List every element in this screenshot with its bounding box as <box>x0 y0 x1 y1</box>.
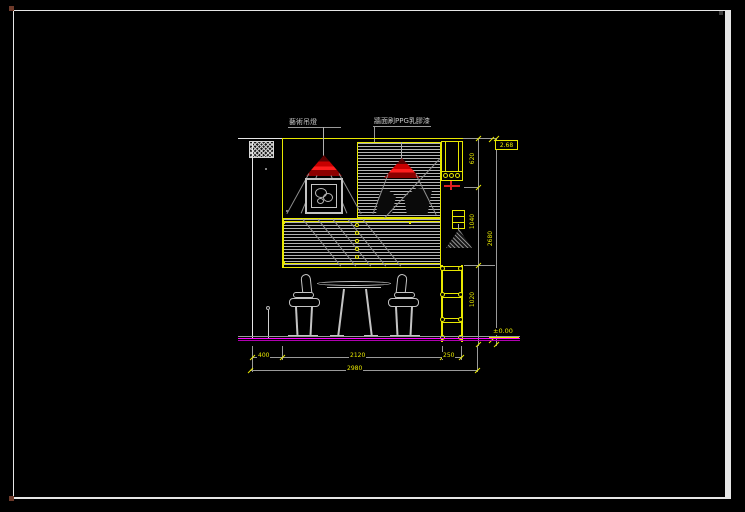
frame-art-flower <box>317 198 324 204</box>
label-pendant: 藝術吊燈 <box>289 118 317 126</box>
red-center-marker <box>450 181 452 190</box>
cabinet-stile <box>445 142 446 172</box>
floor-line-magenta <box>238 338 520 339</box>
ladder-joint <box>440 317 445 322</box>
hinge-circle <box>355 247 359 251</box>
ladder-joint <box>458 266 463 271</box>
chair-leg <box>310 307 313 335</box>
dim-text: 400 <box>257 352 270 359</box>
sheet-border-right <box>725 10 731 499</box>
cabinet-knob <box>449 173 454 178</box>
dim-text-overall: 2680 <box>487 230 494 247</box>
ref-dot <box>265 168 267 170</box>
sheet-corner-mark <box>9 496 14 501</box>
ladder-joint <box>458 292 463 297</box>
lamp-shade <box>306 155 342 176</box>
cad-drawing-canvas[interactable]: 藝術吊燈 牆面刷PPG乳膠漆 <box>0 0 745 512</box>
table-top <box>317 281 391 286</box>
dim-text: 250 <box>442 352 455 359</box>
cabinet-knob <box>443 173 448 178</box>
dim-text: 1040 <box>469 213 476 230</box>
table-leg <box>337 289 345 336</box>
cabinet-knob <box>455 173 460 178</box>
dim-text: 620 <box>469 152 476 165</box>
red-center-marker <box>444 185 460 187</box>
ladder-rail <box>441 265 443 342</box>
hinge-circle <box>355 223 359 227</box>
floor-line-magenta-dark <box>238 340 520 341</box>
dim-text: 1020 <box>469 291 476 308</box>
table-leg <box>365 289 373 336</box>
hinge-circle <box>355 255 359 259</box>
hinge-circle <box>355 239 359 243</box>
chair-right <box>381 274 421 337</box>
sheet-border-left <box>13 10 14 498</box>
elevation-top-edge <box>282 138 463 139</box>
dim-tick <box>494 342 500 348</box>
sheet-border-bottom <box>13 497 731 499</box>
chair-seat <box>388 298 419 307</box>
wall-sconce <box>446 229 472 248</box>
label-pendant-underline <box>288 127 341 128</box>
lamp-cord <box>401 142 402 160</box>
dim-text: 2120 <box>349 352 366 359</box>
floor-line-gray <box>238 336 520 337</box>
ladder-joint <box>440 292 445 297</box>
band-corner-dot <box>283 222 285 224</box>
ladder-rail <box>461 265 463 342</box>
floor-element-line <box>268 310 269 338</box>
dim-line-vertical-inner <box>478 138 479 346</box>
dim-line-horizontal-row2 <box>250 370 478 371</box>
mini-shelf-rung <box>453 222 464 223</box>
ceiling-line-left <box>238 138 282 139</box>
level-marker-top: 2.68 <box>495 140 518 150</box>
label-wall-finish: 牆面刷PPG乳膠漆 <box>374 117 430 125</box>
cabinet-shelf-line <box>442 171 462 172</box>
band-corner-dot <box>283 261 285 263</box>
level-marker-floor: ±0.00 <box>492 328 514 335</box>
table-apron <box>327 287 381 288</box>
dim-text-overall: 2980 <box>346 365 363 372</box>
sheet-corner-mark <box>9 6 14 11</box>
chair-left <box>287 274 327 337</box>
ladder-joint <box>440 266 445 271</box>
floor-element-knob <box>266 306 270 310</box>
frame-art-flower <box>323 193 333 202</box>
ladder-joint <box>458 317 463 322</box>
band-corner-dot <box>409 222 411 224</box>
lamp-cord <box>323 127 324 156</box>
chair-leg <box>410 307 413 335</box>
wainscot-band-bottom-line <box>284 263 440 264</box>
cabinet-stile <box>458 142 459 172</box>
dim-line-vertical-outer <box>496 138 497 346</box>
dim-tick <box>475 368 481 374</box>
chair-leg <box>395 307 398 335</box>
label-wall-finish-underline <box>373 126 431 127</box>
sheet-corner-mark <box>719 11 723 15</box>
sconce-stem <box>458 224 459 230</box>
wainscot-band-top-line <box>284 221 440 222</box>
left-wall-line <box>252 142 253 338</box>
chair-leg <box>295 307 298 335</box>
sheet-border-top <box>13 10 726 11</box>
chair-seat <box>289 298 320 307</box>
hinge-circle <box>355 231 359 235</box>
mini-shelf-rung <box>453 216 464 217</box>
